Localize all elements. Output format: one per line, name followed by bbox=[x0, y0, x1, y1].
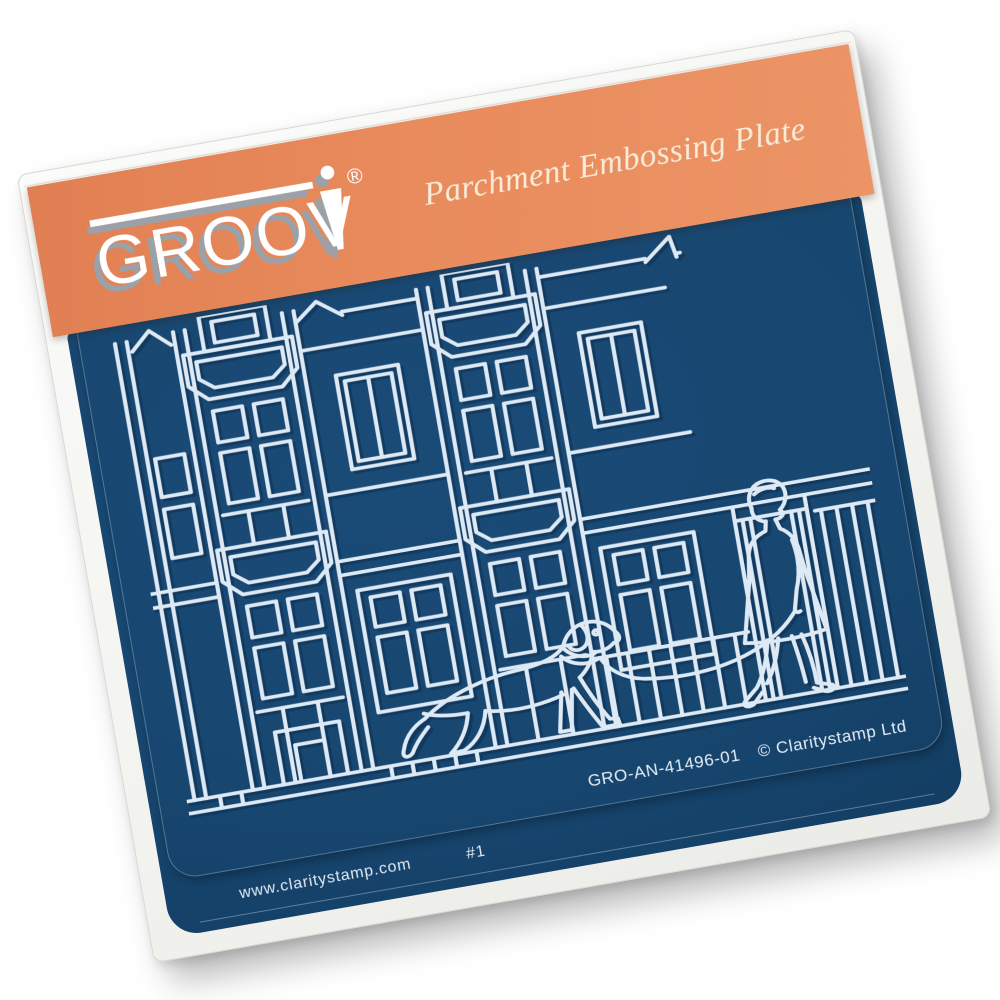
plate-number: #1 bbox=[465, 843, 487, 863]
product-photo: GRO-AN-41496-01© Claritystamp Ltd www.cl… bbox=[0, 0, 1000, 1000]
groovi-logo: GROOV GROOV ® bbox=[82, 149, 407, 305]
tagline: Parchment Embossing Plate bbox=[421, 110, 809, 213]
package: GRO-AN-41496-01© Claritystamp Ltd www.cl… bbox=[17, 29, 992, 963]
registered-mark: ® bbox=[345, 163, 365, 189]
